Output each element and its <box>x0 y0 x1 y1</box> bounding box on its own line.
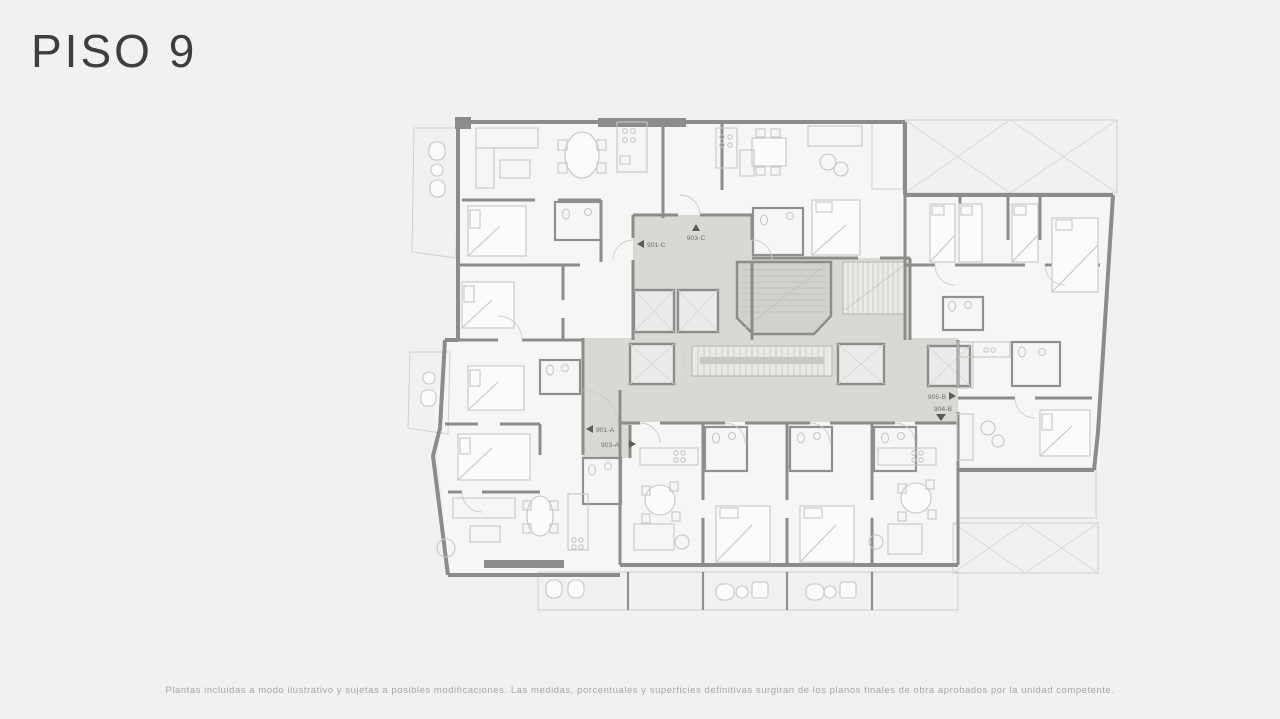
footer-disclaimer: Plantas incluidas a modo ilustrativo y s… <box>165 685 1114 696</box>
terrace-bottom-right <box>953 523 1098 573</box>
terrace-top-right <box>905 120 1117 193</box>
svg-text:901-A: 901-A <box>596 427 615 434</box>
stair-landing <box>700 357 824 364</box>
svg-text:905-B: 905-B <box>928 394 947 401</box>
floorplan-page: PISO 9 <box>0 0 1280 719</box>
balcony-left-top <box>412 128 458 258</box>
svg-text:903-C: 903-C <box>687 235 706 242</box>
floor-plan: 901-C 903-C 901-A 903-A 905-B 904-B <box>0 0 1280 719</box>
svg-text:901-C: 901-C <box>647 242 666 249</box>
balcony-bottom <box>538 572 958 610</box>
balcony-right <box>958 468 1096 518</box>
svg-text:904-B: 904-B <box>934 406 953 413</box>
footer: Plantas incluidas a modo ilustrativo y s… <box>0 680 1280 698</box>
svg-text:903-A: 903-A <box>601 442 620 449</box>
